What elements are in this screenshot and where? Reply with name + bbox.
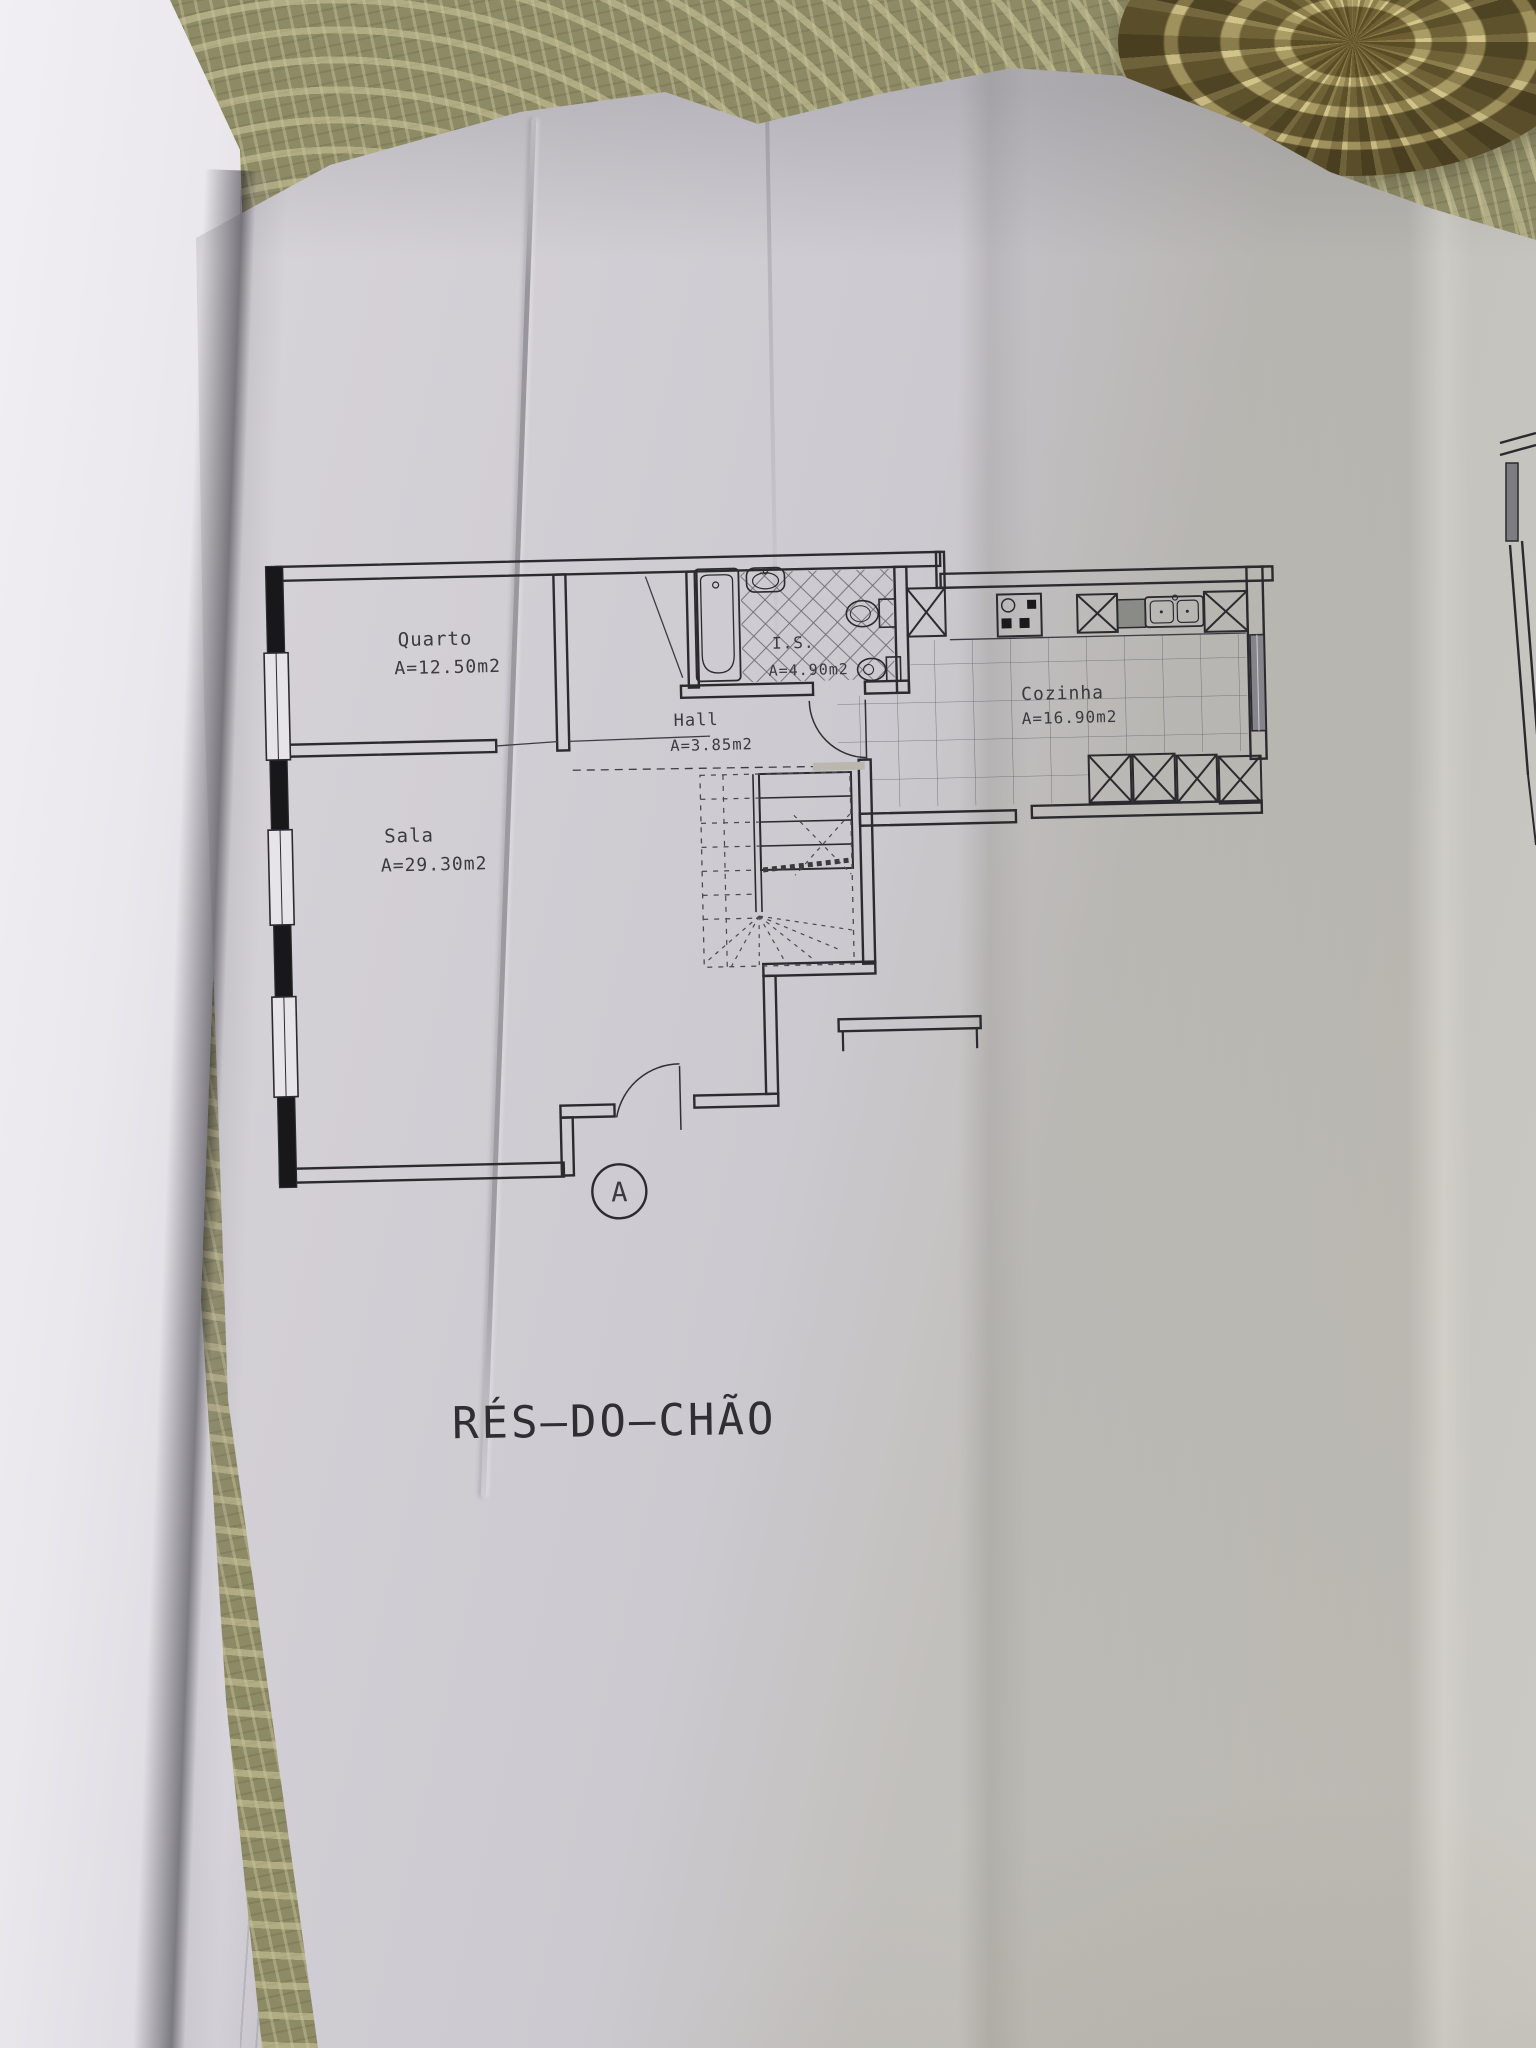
room-hall-name: Hall	[673, 710, 718, 731]
room-is-area: A=4.90m2	[768, 660, 849, 680]
stairs	[700, 772, 855, 969]
entry-door	[615, 1064, 680, 1131]
room-quarto-name: Quarto	[398, 628, 473, 652]
floor-plan-drawing: Quarto A=12.50m2 Sala A=29.30m2 Hall A=3…	[247, 501, 1455, 1318]
section-marker: A	[592, 1164, 647, 1219]
room-quarto-area: A=12.50m2	[394, 656, 501, 679]
room-is-name: I.S.	[772, 633, 815, 653]
counter-hatch	[1117, 599, 1146, 628]
bathtub	[694, 568, 741, 681]
room-cozinha-area: A=16.90m2	[1022, 707, 1118, 728]
kitchen-sink	[1145, 594, 1204, 627]
stove	[997, 594, 1042, 637]
section-marker-letter: A	[611, 1177, 628, 1208]
room-sala-area: A=29.30m2	[381, 853, 488, 876]
photo-of-plan-book: Quarto A=12.50m2 Sala A=29.30m2 Hall A=3…	[0, 0, 1536, 2048]
room-cozinha-name: Cozinha	[1021, 682, 1104, 705]
room-sala-name: Sala	[384, 824, 434, 847]
room-hall-area: A=3.85m2	[670, 735, 753, 755]
adjacent-sheet-edge	[1470, 415, 1536, 1175]
floor-title: RÉS—DO—CHÃO	[452, 1394, 777, 1450]
